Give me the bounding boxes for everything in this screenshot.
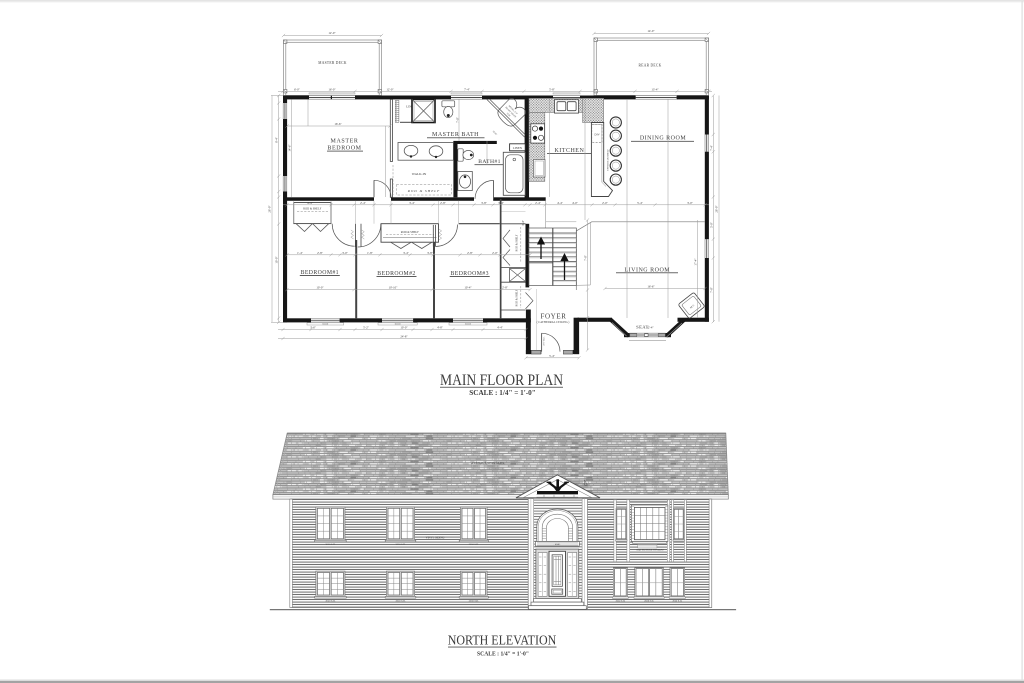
- svg-text:3050 S.H.: 3050 S.H.: [325, 599, 335, 602]
- svg-text:BEDROOM#3: BEDROOM#3: [451, 271, 489, 277]
- svg-text:4'-4": 4'-4": [307, 201, 314, 205]
- svg-text:( CATHEDRAL CEILING ): ( CATHEDRAL CEILING ): [537, 320, 570, 324]
- svg-text:MASTER BATH: MASTER BATH: [432, 132, 479, 138]
- svg-text:10'-0": 10'-0": [275, 256, 279, 264]
- svg-text:ROD & SHELF: ROD & SHELF: [516, 289, 519, 306]
- svg-text:KITCHEN: KITCHEN: [554, 148, 584, 154]
- svg-text:ROD & SHELF: ROD & SHELF: [516, 234, 519, 251]
- svg-text:UPPER BAR SHELF: UPPER BAR SHELF: [607, 148, 610, 170]
- svg-text:12'-4": 12'-4": [646, 326, 654, 330]
- svg-text:17'-4": 17'-4": [694, 258, 698, 266]
- svg-text:5'-4": 5'-4": [637, 201, 644, 205]
- svg-text:10'-10": 10'-10": [389, 286, 399, 290]
- svg-text:8'-4": 8'-4": [275, 136, 279, 143]
- svg-text:3050 S.H.: 3050 S.H.: [395, 599, 405, 602]
- svg-text:3050 S.H.: 3050 S.H.: [325, 543, 335, 546]
- svg-text:1'-8": 1'-8": [367, 251, 374, 255]
- svg-text:2'-8": 2'-8": [467, 251, 474, 255]
- svg-text:3'-8": 3'-8": [427, 251, 434, 255]
- svg-text:VINYL SIDING: VINYL SIDING: [426, 537, 445, 540]
- svg-text:2'-4": 2'-4": [535, 201, 542, 205]
- svg-text:2030 S.H.: 2030 S.H.: [616, 600, 626, 603]
- svg-text:2'-8": 2'-8": [317, 251, 324, 255]
- svg-text:ROD & SHELF: ROD & SHELF: [407, 189, 440, 193]
- svg-text:· 4040 ·: · 4040 ·: [554, 543, 562, 546]
- svg-text:7'-8": 7'-8": [584, 254, 588, 261]
- svg-text:NORTH ELEVATION: NORTH ELEVATION: [448, 633, 557, 648]
- svg-text:ROD & SHELF: ROD & SHELF: [303, 208, 321, 211]
- svg-text:16'-0": 16'-0": [328, 87, 336, 91]
- svg-text:SCALE : 1/4" = 1'-0": SCALE : 1/4" = 1'-0": [477, 650, 529, 657]
- svg-text:7'-0": 7'-0": [456, 116, 460, 123]
- svg-text:3'-4": 3'-4": [403, 251, 410, 255]
- svg-text:3'-6": 3'-6": [310, 326, 317, 330]
- svg-text:LINEN: LINEN: [513, 146, 523, 150]
- svg-text:7'-8": 7'-8": [709, 286, 713, 293]
- svg-text:4'-4": 4'-4": [497, 326, 504, 330]
- svg-text:MASTER DECK: MASTER DECK: [318, 61, 347, 65]
- svg-text:28'-0": 28'-0": [268, 205, 272, 213]
- svg-text:1'-4": 1'-4": [297, 251, 304, 255]
- svg-text:5'-8": 5'-8": [549, 87, 556, 91]
- svg-text:5'-4": 5'-4": [549, 354, 556, 358]
- svg-text:4'-8": 4'-8": [437, 326, 444, 330]
- svg-text:3'-8": 3'-8": [481, 201, 488, 205]
- svg-text:4'-4": 4'-4": [557, 201, 564, 205]
- svg-text:16'-6": 16'-6": [647, 285, 655, 289]
- svg-text:12'-0": 12'-0": [386, 87, 394, 91]
- svg-text:12'-0": 12'-0": [328, 31, 336, 35]
- svg-text:ASPHALT SHINGLES: ASPHALT SHINGLES: [471, 461, 504, 465]
- svg-text:BEDROOM#1: BEDROOM#1: [301, 270, 339, 276]
- svg-text:2'-8": 2'-8": [440, 201, 447, 205]
- svg-text:D/W: D/W: [594, 134, 600, 137]
- svg-text:2'-4": 2'-4": [360, 201, 367, 205]
- svg-text:10'-0": 10'-0": [316, 286, 324, 290]
- svg-text:2030 S.H.: 2030 S.H.: [644, 600, 654, 603]
- svg-text:3'-4": 3'-4": [409, 201, 416, 205]
- svg-text:14'-6": 14'-6": [288, 144, 292, 152]
- svg-text:2'-0": 2'-0": [602, 201, 609, 205]
- svg-text:7'-4": 7'-4": [709, 144, 713, 151]
- svg-text:MASTER: MASTER: [331, 138, 359, 144]
- svg-text:3'-0": 3'-0": [687, 201, 694, 205]
- svg-text:DINING ROOM: DINING ROOM: [640, 136, 686, 142]
- svg-text:4'-0" R.O.: 4'-0" R.O.: [544, 336, 546, 346]
- svg-text:24'-8": 24'-8": [400, 335, 408, 339]
- svg-text:3050 S.H.: 3050 S.H.: [469, 543, 479, 546]
- svg-text:3050 S.H.: 3050 S.H.: [395, 543, 405, 546]
- svg-text:3'-4": 3'-4": [498, 201, 505, 205]
- svg-text:3'-0": 3'-0": [342, 251, 349, 255]
- svg-text:5'-0": 5'-0": [709, 221, 713, 228]
- svg-text:2'-8": 2'-8": [502, 286, 509, 290]
- svg-text:WALK-IN: WALK-IN: [412, 172, 427, 176]
- svg-text:6'-0": 6'-0": [294, 87, 301, 91]
- svg-text:3050 S.H.: 3050 S.H.: [469, 599, 479, 602]
- svg-text:REAR DECK: REAR DECK: [639, 64, 662, 68]
- svg-text:MAIN FLOOR PLAN: MAIN FLOOR PLAN: [440, 372, 563, 389]
- svg-text:14'-0": 14'-0": [647, 29, 655, 33]
- svg-text:13'-4": 13'-4": [651, 87, 659, 91]
- svg-text:2'-0": 2'-0": [492, 251, 499, 255]
- svg-text:BEDROOM#2: BEDROOM#2: [377, 271, 415, 277]
- svg-text:SCALE : 1/4" = 1'-0": SCALE : 1/4" = 1'-0": [469, 389, 536, 397]
- svg-text:10'-0": 10'-0": [400, 326, 408, 330]
- svg-text:3'-4": 3'-4": [521, 219, 525, 226]
- svg-text:5040 PICTURE WINDOW: 5040 PICTURE WINDOW: [636, 549, 664, 552]
- svg-text:4'-0": 4'-0": [572, 201, 579, 205]
- svg-text:7'-4": 7'-4": [464, 87, 471, 91]
- svg-text:5'-2": 5'-2": [363, 326, 370, 330]
- svg-text:2030 S.H.: 2030 S.H.: [672, 600, 682, 603]
- svg-text:10'-4": 10'-4": [464, 286, 472, 290]
- svg-text:28'-0": 28'-0": [715, 205, 719, 213]
- svg-text:16'-6": 16'-6": [334, 122, 342, 126]
- svg-text:ROD & SHELF: ROD & SHELF: [401, 231, 419, 234]
